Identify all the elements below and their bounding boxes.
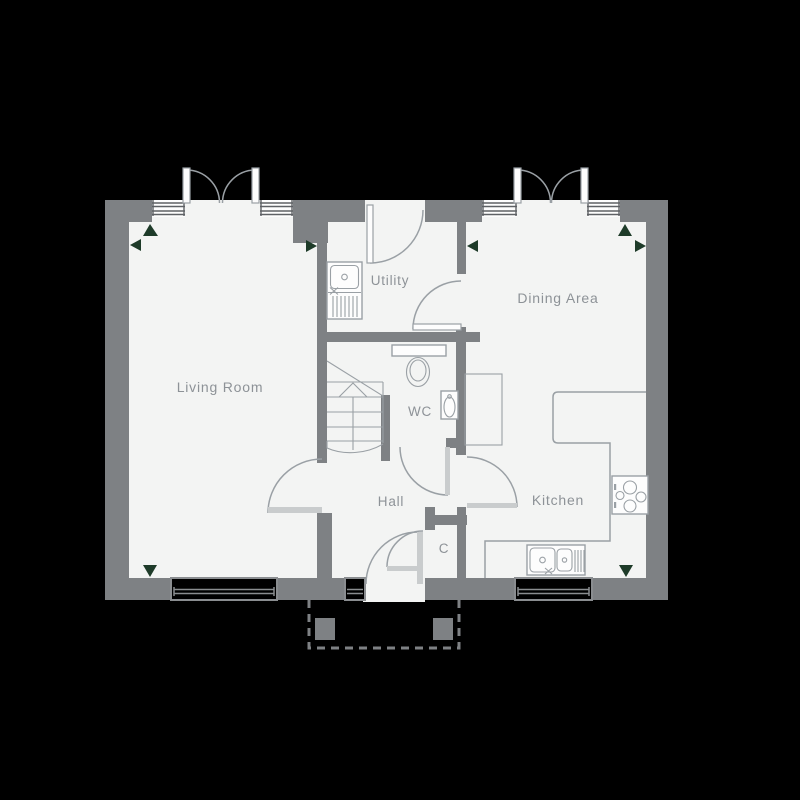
wall-utility-dining	[457, 222, 466, 274]
window	[260, 200, 293, 217]
door-leaf	[252, 168, 259, 203]
wall-segment	[277, 578, 345, 600]
door-leaf	[581, 168, 588, 203]
floor-plan-stage: Living Room Utility Dining Area WC Hall …	[0, 0, 800, 800]
kitchen-sink-icon	[527, 545, 585, 575]
window	[152, 200, 185, 217]
room-label-hall: Hall	[378, 494, 404, 509]
window	[171, 578, 277, 600]
wall-right	[646, 200, 668, 600]
window	[515, 578, 592, 600]
porch	[309, 600, 459, 648]
wall-cupboard-right	[457, 507, 466, 578]
porch-post	[433, 618, 453, 640]
wall-segment	[592, 578, 668, 600]
door-swing-arc	[187, 170, 220, 203]
window	[345, 578, 365, 600]
wall-segment	[293, 200, 365, 222]
door-swing-arc	[223, 170, 256, 203]
wall-segment	[425, 578, 515, 600]
door-leaf	[183, 168, 190, 203]
hob-control	[614, 484, 616, 490]
door-swing-arc	[518, 170, 551, 203]
window	[587, 200, 620, 217]
room-label-cupboard: C	[439, 541, 450, 556]
door-leaf	[417, 532, 423, 584]
window	[482, 200, 517, 217]
door-leaf	[367, 205, 373, 263]
wall-left	[105, 200, 129, 600]
room-label-dining-area: Dining Area	[517, 290, 598, 306]
basin-icon	[441, 391, 458, 419]
wall-wc-stub	[446, 438, 456, 448]
wall-utility-bottom	[317, 332, 480, 342]
wall-segment	[105, 578, 171, 600]
door-leaf	[445, 447, 450, 495]
door-swing-arc	[552, 170, 585, 203]
front-door-threshold	[363, 578, 425, 602]
room-label-utility: Utility	[371, 273, 410, 288]
floor-plan: Living Room Utility Dining Area WC Hall …	[0, 0, 800, 800]
wall-cupboard-stub	[425, 507, 435, 530]
door-leaf	[467, 503, 517, 508]
utility-sink-icon	[327, 262, 362, 319]
porch-post	[315, 618, 335, 640]
french-doors-dining	[514, 168, 588, 203]
wall-living-divider-lower	[317, 513, 332, 578]
wall-living-divider	[317, 222, 327, 463]
hob-control	[614, 502, 616, 508]
door-leaf	[514, 168, 521, 203]
wall-stair-side	[381, 395, 390, 461]
door-leaf	[268, 507, 322, 513]
room-label-living-room: Living Room	[177, 379, 264, 395]
hob-icon	[612, 476, 648, 514]
french-doors-living	[183, 168, 259, 203]
room-label-wc: WC	[408, 404, 432, 419]
door-leaf	[413, 324, 461, 330]
room-label-kitchen: Kitchen	[532, 492, 584, 508]
wall-segment	[425, 200, 482, 222]
